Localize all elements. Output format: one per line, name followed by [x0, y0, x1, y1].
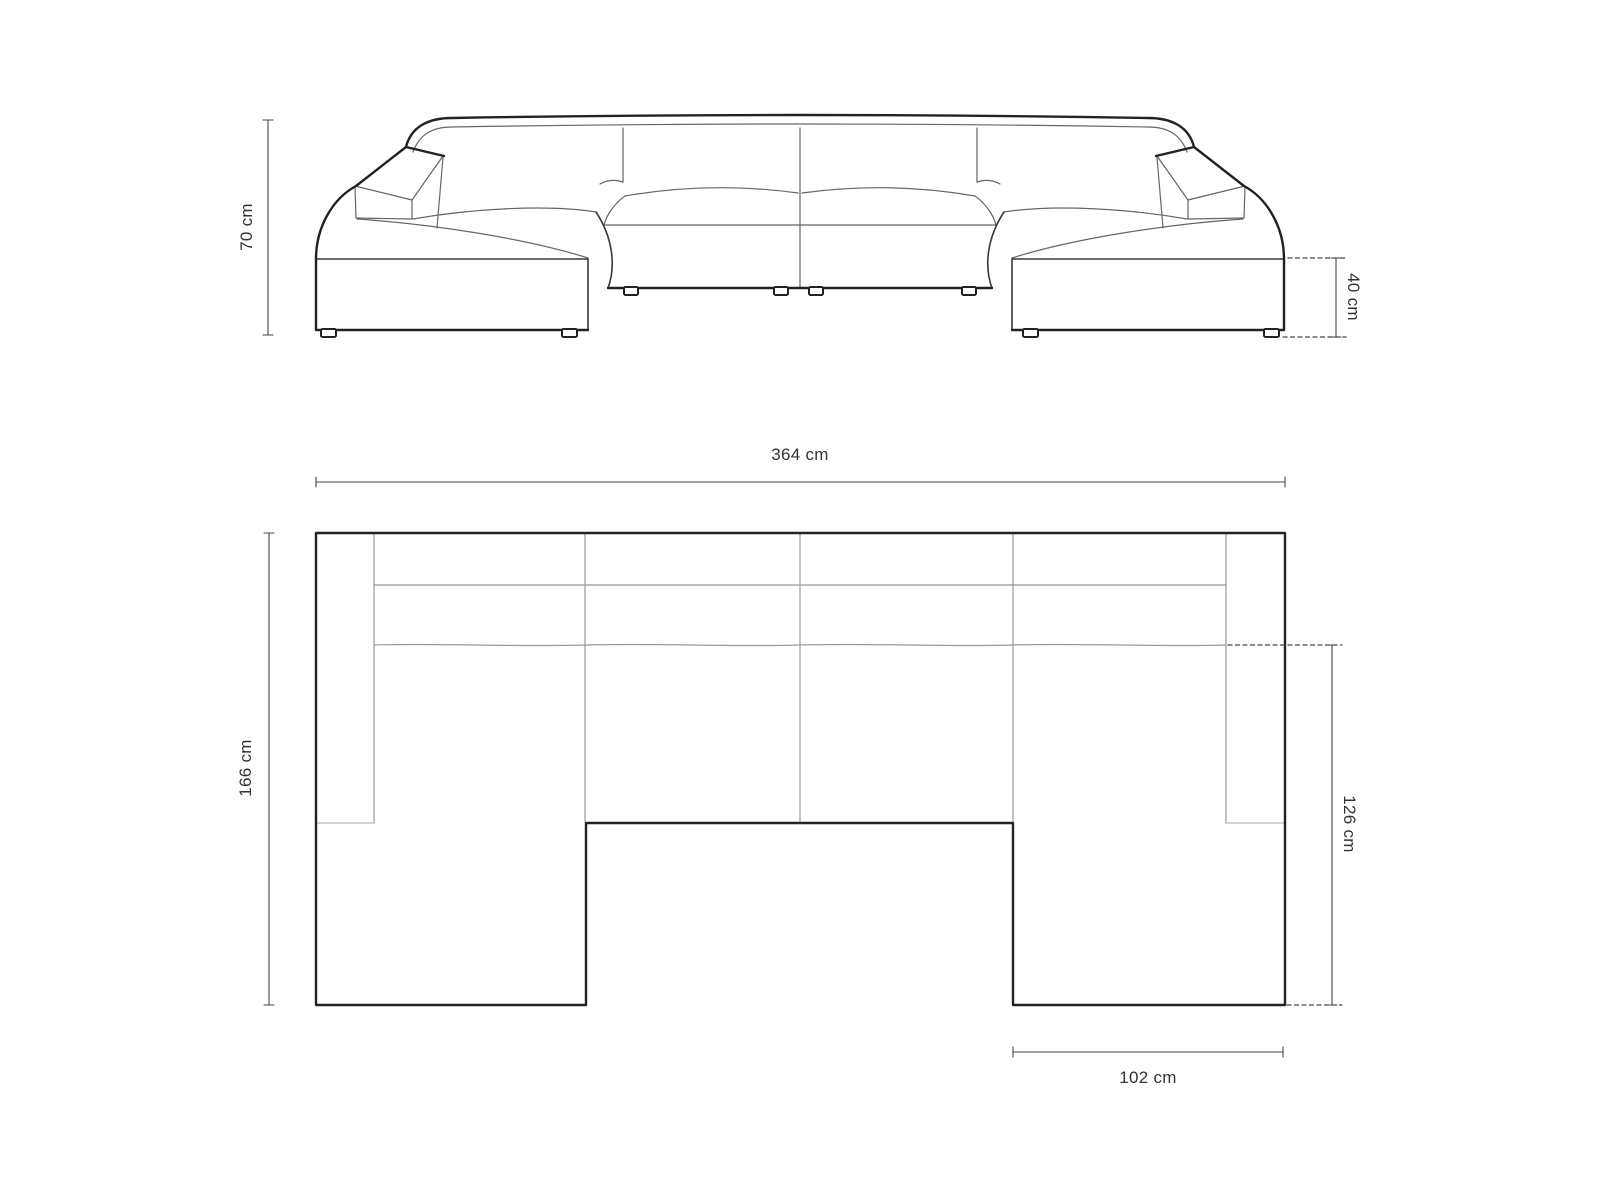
dimension-label-total-width: 364 cm: [771, 445, 829, 465]
dimension-line-total-width: [316, 477, 1285, 487]
dimension-label-chaise-depth: 126 cm: [1339, 795, 1359, 853]
dimension-label-base-height: 40 cm: [1343, 273, 1363, 321]
dimension-label-total-height: 70 cm: [237, 203, 257, 251]
top-plan-view: [316, 533, 1285, 1005]
dimension-lines: [263, 120, 1346, 1057]
dimension-line-total-depth: [264, 533, 274, 1005]
sofa-dimension-drawing: 70 cm 40 cm 364 cm 166 cm 126 cm 102 cm: [0, 0, 1600, 1200]
plan-seam-lines: [374, 533, 1226, 823]
dimension-label-total-depth: 166 cm: [236, 739, 256, 797]
front-elevation-view: [316, 115, 1284, 337]
elevation-seam-lines: [355, 124, 1245, 288]
dimension-label-chaise-width: 102 cm: [1119, 1068, 1177, 1088]
dimension-line-chaise-width: [1013, 1047, 1283, 1057]
dimension-line-base-height: [1283, 258, 1346, 337]
dimension-line-total-height: [263, 120, 273, 335]
line-art: [0, 0, 1600, 1200]
